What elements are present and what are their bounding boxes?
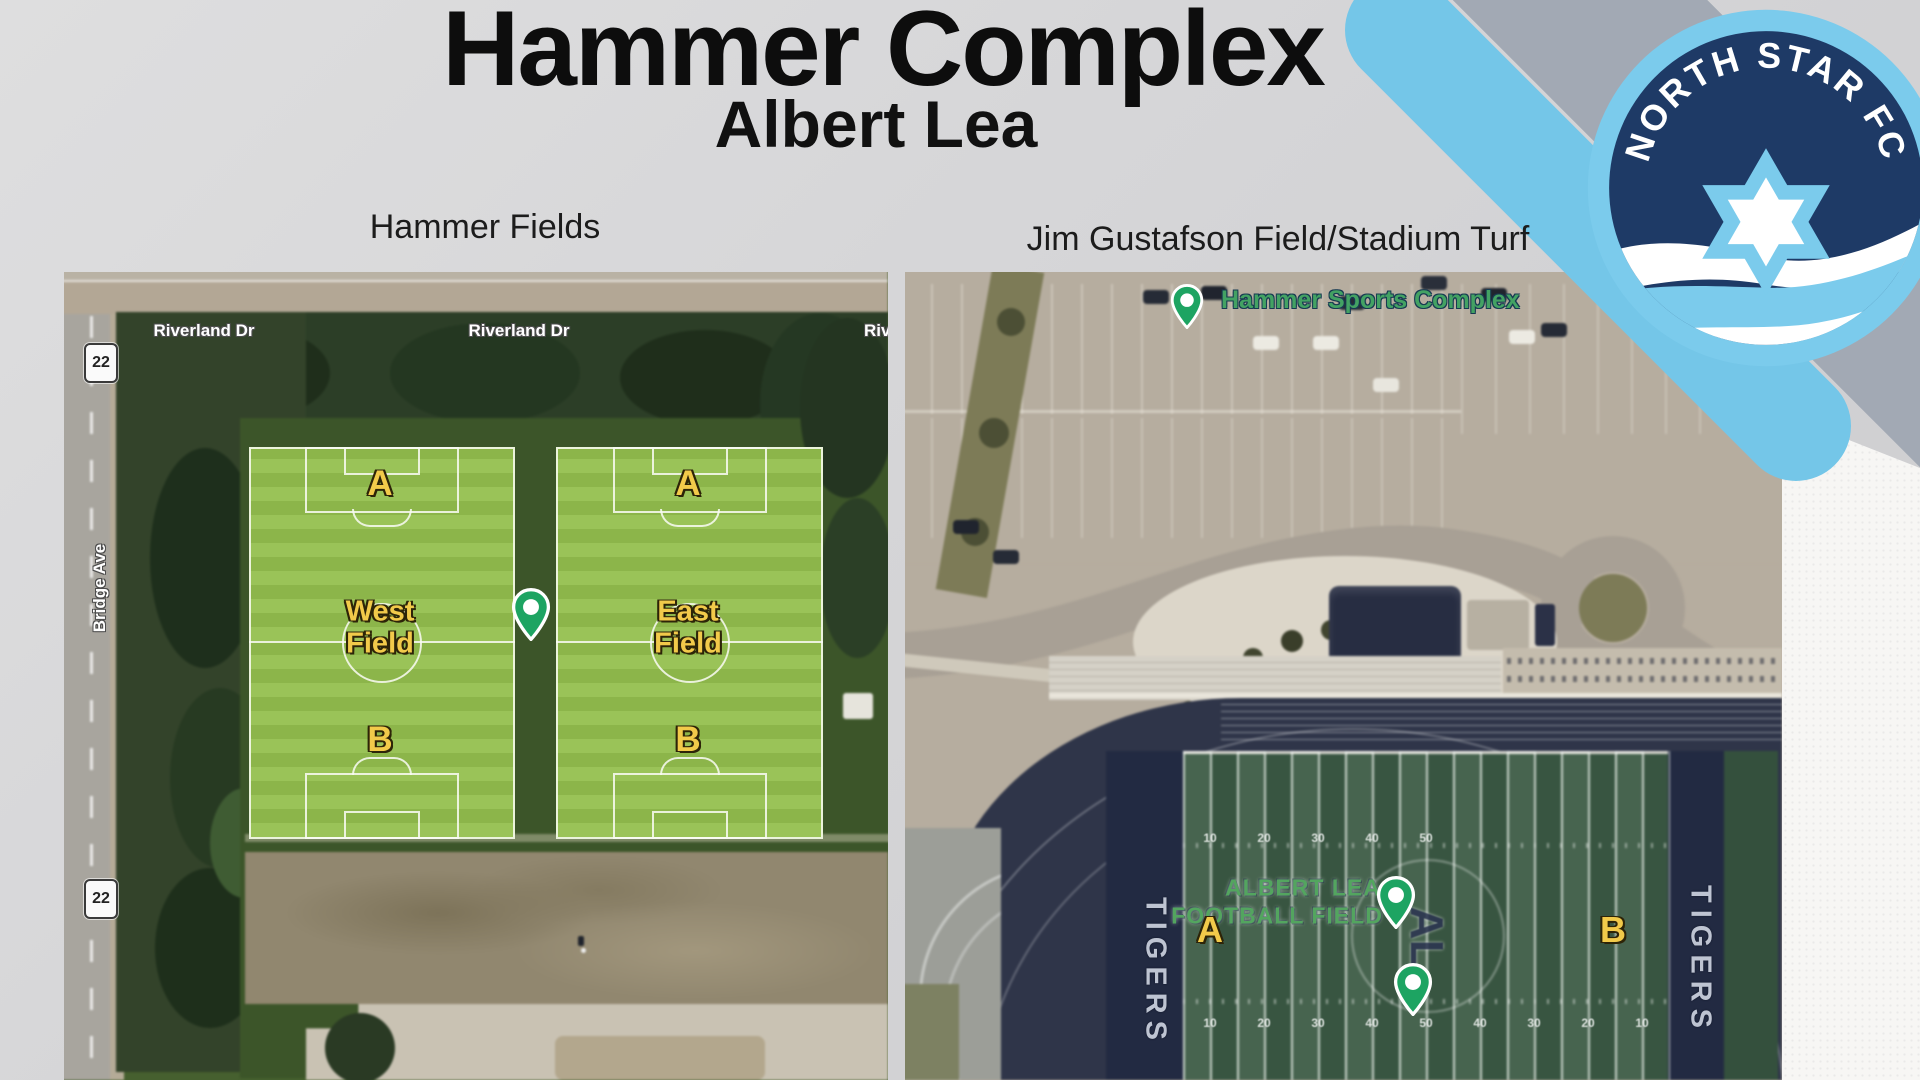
yard-number: 10 <box>1635 1016 1648 1030</box>
yard-number: 20 <box>1257 831 1270 845</box>
street-label-riverland-1: Riverland Dr <box>153 321 254 341</box>
yard-number: 10 <box>1203 1016 1216 1030</box>
penalty-arc <box>352 509 412 527</box>
field-name-west-1: West <box>346 596 415 629</box>
field-label-east-b: B <box>675 720 700 760</box>
north-star-fc-logo: NORTH STAR FC <box>1582 4 1920 372</box>
jim-gustafson-map: Hammer Sports Complex TIGERS TIGERS ALBE… <box>905 272 1782 1080</box>
goal-box <box>652 811 728 839</box>
yard-number: 40 <box>1365 1016 1378 1030</box>
yard-number: 30 <box>1527 1016 1540 1030</box>
tree <box>1281 630 1303 652</box>
page-subtitle: Albert Lea <box>715 86 1038 162</box>
poi-label: Hammer Sports Complex <box>1221 286 1520 315</box>
stadium-label-line1: ALBERT LEA <box>1225 875 1381 902</box>
map-pin-icon <box>511 588 551 641</box>
field-label-west-b: B <box>367 720 392 760</box>
person <box>578 936 584 946</box>
penalty-arc <box>660 509 720 527</box>
satellite-imagery <box>905 272 1782 1080</box>
field-name-west-2: Field <box>346 628 414 661</box>
yard-number: 50 <box>1419 831 1432 845</box>
trees <box>820 498 888 658</box>
corner-panel-white <box>1782 400 1920 1080</box>
shed-roof <box>843 693 873 719</box>
zone-label-a: A <box>1197 909 1223 951</box>
yard-number: 20 <box>1257 1016 1270 1030</box>
left-map-caption: Hammer Fields <box>370 208 600 247</box>
yard-number: 50 <box>1419 1016 1432 1030</box>
end-zone-text-left: TIGERS <box>1139 897 1172 1047</box>
riverland-road <box>64 280 888 314</box>
seat-rows <box>1507 658 1778 664</box>
zone-label-b: B <box>1600 909 1626 951</box>
field-name-east-1: East <box>657 596 718 629</box>
sidewalk <box>64 272 888 280</box>
yard-number: 20 <box>1581 1016 1594 1030</box>
street-label-riverland-2: Riverland Dr <box>468 321 569 341</box>
right-map-caption: Jim Gustafson Field/Stadium Turf <box>1027 220 1530 259</box>
map-pin-icon <box>1170 284 1204 329</box>
field-apron <box>1724 751 1778 1080</box>
grass-corner <box>905 984 959 1080</box>
seat-rows <box>1507 676 1778 682</box>
end-zone-text-right: TIGERS <box>1684 885 1717 1035</box>
goal-box <box>344 811 420 839</box>
field-label-east-a: A <box>675 464 700 504</box>
street-label-bridge-ave: Bridge Ave <box>90 544 110 633</box>
yard-number: 40 <box>1365 831 1378 845</box>
yard-number: 40 <box>1473 1016 1486 1030</box>
road-dashes <box>90 272 93 1080</box>
map-pin-icon <box>1376 876 1416 929</box>
poster-canvas: A B West Field A B East Field Riverland … <box>0 0 1920 1080</box>
seat-rows <box>1503 648 1782 696</box>
building-annex <box>1467 600 1529 650</box>
field-name-east-2: Field <box>654 628 722 661</box>
street-label-riverland-3: Riv <box>864 321 888 341</box>
yard-number: 10 <box>1203 831 1216 845</box>
route-number: 22 <box>92 890 110 908</box>
dirt-field <box>245 852 888 1004</box>
person <box>581 948 586 953</box>
field-label-west-a: A <box>367 464 392 504</box>
map-pin-icon <box>1393 963 1433 1016</box>
route-shield-22-top: 22 <box>84 343 118 383</box>
trees <box>325 1013 395 1080</box>
route-number: 22 <box>92 354 110 372</box>
yard-number: 30 <box>1311 831 1324 845</box>
building-annex <box>1535 604 1555 646</box>
hammer-fields-map: A B West Field A B East Field Riverland … <box>64 272 888 1080</box>
yard-number: 30 <box>1311 1016 1324 1030</box>
parking-median <box>555 1036 765 1080</box>
route-shield-22-bottom: 22 <box>84 879 118 919</box>
